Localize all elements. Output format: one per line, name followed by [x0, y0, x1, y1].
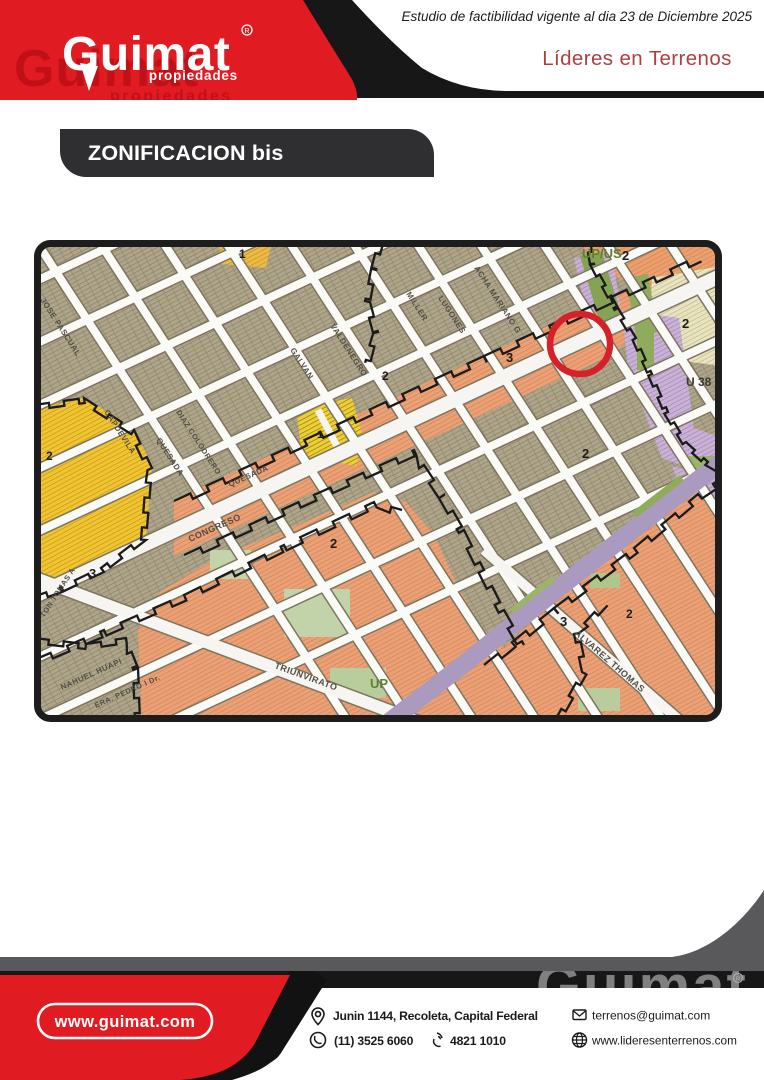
svg-text:3: 3: [89, 566, 96, 581]
svg-text:www.guimat.com: www.guimat.com: [54, 1013, 196, 1031]
svg-text:2: 2: [622, 248, 629, 263]
svg-text:Líderes en Terrenos: Líderes en Terrenos: [542, 47, 732, 70]
svg-text:propiedades: propiedades: [110, 88, 233, 105]
svg-text:propiedades: propiedades: [149, 68, 238, 83]
svg-text:2: 2: [582, 446, 589, 461]
svg-text:2: 2: [330, 536, 337, 551]
svg-text:www.lideresenterrenos.com: www.lideresenterrenos.com: [591, 1034, 737, 1048]
svg-text:4821 1010: 4821 1010: [450, 1034, 506, 1048]
svg-text:R: R: [244, 28, 249, 35]
svg-text:3: 3: [506, 350, 513, 365]
svg-text:terrenos@guimat.com: terrenos@guimat.com: [592, 1009, 710, 1023]
svg-text:Junin 1144, Recoleta, Capital: Junin 1144, Recoleta, Capital Federal: [333, 1009, 538, 1023]
svg-text:2: 2: [626, 607, 633, 621]
svg-text:3: 3: [560, 614, 567, 629]
svg-text:Estudio de factibilidad vigent: Estudio de factibilidad vigente al dia 2…: [402, 9, 753, 24]
svg-text:2: 2: [46, 449, 53, 463]
svg-text:U 38: U 38: [686, 375, 712, 389]
svg-text:2: 2: [382, 369, 389, 383]
svg-text:UP: UP: [370, 676, 388, 691]
svg-text:1: 1: [317, 429, 323, 441]
svg-text:(11) 3525 6060: (11) 3525 6060: [334, 1034, 414, 1048]
svg-text:2: 2: [682, 316, 689, 331]
svg-text:UP/US: UP/US: [582, 246, 622, 261]
svg-text:R: R: [736, 976, 741, 983]
svg-text:1: 1: [239, 247, 246, 261]
